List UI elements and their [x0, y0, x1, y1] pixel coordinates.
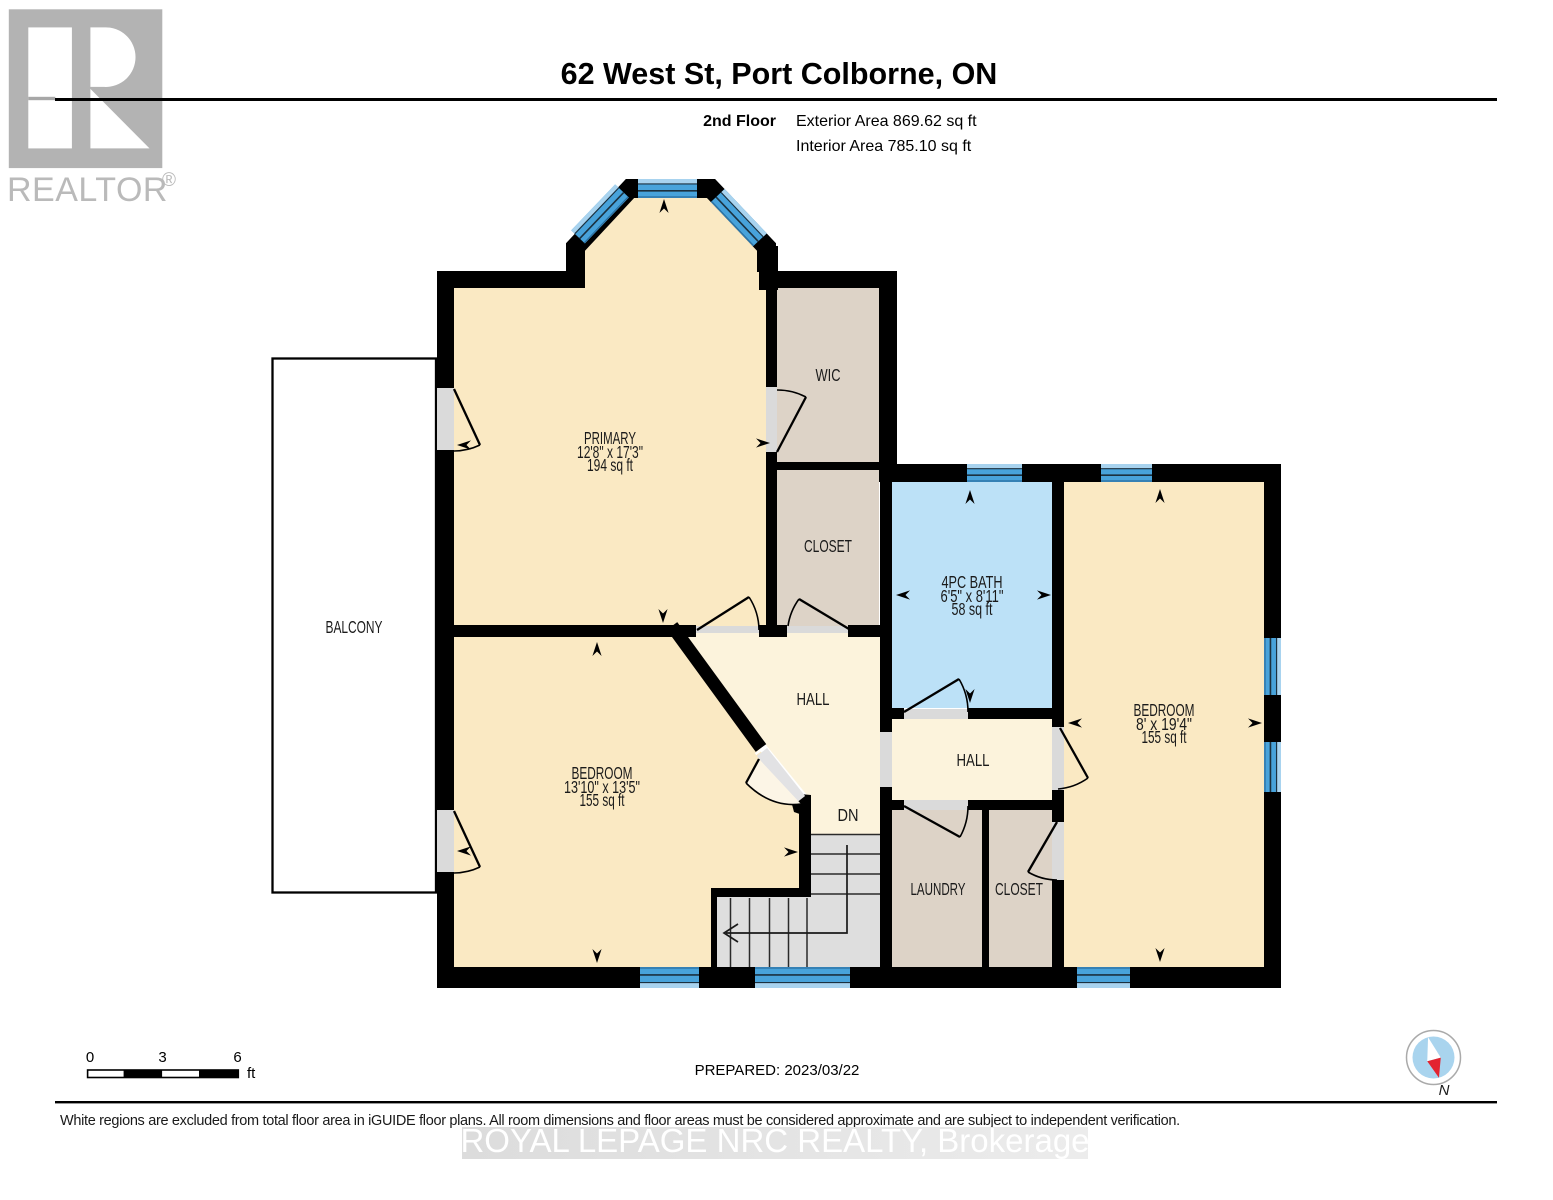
svg-text:0: 0 [86, 1049, 94, 1066]
svg-text:N: N [1439, 1082, 1450, 1099]
svg-text:Interior Area 785.10 sq ft: Interior Area 785.10 sq ft [796, 138, 972, 155]
svg-text:62 West St, Port Colborne, ON: 62 West St, Port Colborne, ON [561, 57, 998, 91]
svg-text:REALTOR: REALTOR [7, 171, 168, 209]
svg-text:®: ® [162, 170, 176, 191]
svg-text:CLOSET: CLOSET [804, 536, 852, 556]
svg-text:CLOSET: CLOSET [995, 879, 1043, 899]
svg-text:6: 6 [233, 1049, 241, 1066]
svg-text:LAUNDRY: LAUNDRY [911, 879, 966, 899]
svg-text:HALL: HALL [957, 750, 990, 770]
svg-text:3: 3 [158, 1049, 166, 1066]
svg-text:ft: ft [247, 1065, 256, 1082]
svg-text:194 sq ft: 194 sq ft [587, 455, 633, 475]
svg-text:WIC: WIC [816, 365, 841, 385]
svg-text:DN: DN [838, 805, 859, 825]
svg-text:HALL: HALL [797, 689, 830, 709]
svg-text:Exterior Area 869.62 sq ft: Exterior Area 869.62 sq ft [796, 113, 977, 130]
svg-text:155 sq ft: 155 sq ft [1142, 727, 1187, 747]
svg-text:58 sq ft: 58 sq ft [952, 599, 993, 619]
svg-text:155 sq ft: 155 sq ft [580, 790, 625, 810]
svg-text:PREPARED: 2023/03/22: PREPARED: 2023/03/22 [695, 1062, 860, 1079]
svg-text:BALCONY: BALCONY [326, 617, 383, 637]
svg-text:2nd Floor: 2nd Floor [703, 113, 776, 130]
svg-text:ROYAL LEPAGE NRC REALTY, Broke: ROYAL LEPAGE NRC REALTY, Brokerage [460, 1122, 1089, 1159]
